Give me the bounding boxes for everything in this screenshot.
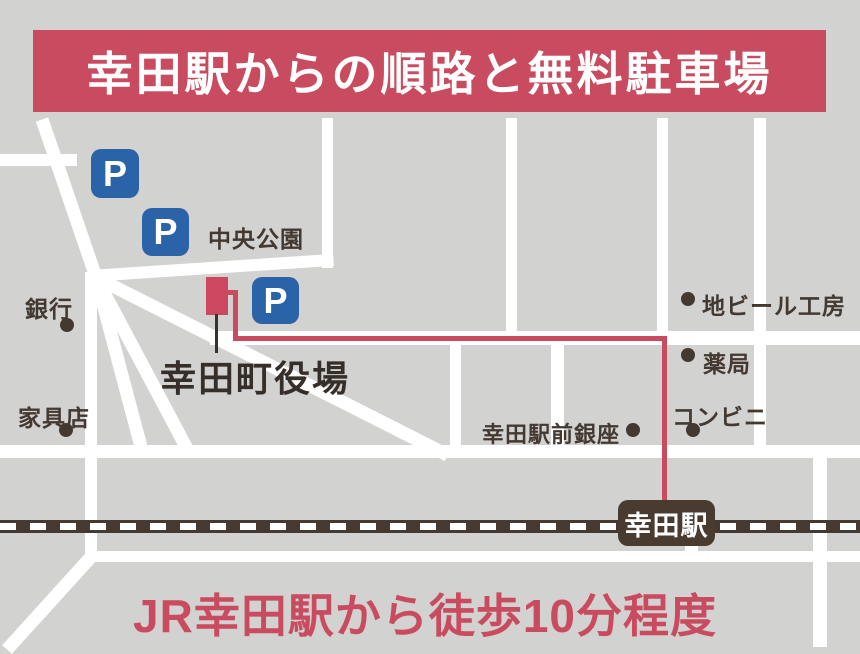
- title-banner: 幸田駅からの順路と無料駐車場: [33, 30, 826, 112]
- road-diagonal-upper-left: [36, 117, 102, 279]
- station-box: 幸田駅: [618, 500, 715, 546]
- road-vertical-2: [506, 118, 517, 338]
- route-segment-down-2: [662, 338, 667, 503]
- town-hall-callout-line: [215, 314, 218, 353]
- parking-letter: P: [153, 211, 177, 253]
- route-segment-horizontal: [233, 336, 667, 341]
- parking-letter: P: [103, 153, 127, 195]
- label-beer-brewery: 地ビール工房: [702, 287, 846, 321]
- page-title: 幸田駅からの順路と無料駐車場: [87, 38, 773, 104]
- town-hall-label: 幸田町役場: [160, 350, 350, 402]
- road-vertical-5: [450, 344, 461, 446]
- label-central-park: 中央公園: [208, 220, 304, 254]
- location-dot-furniture-store: [59, 423, 73, 437]
- footer-note: JR幸田駅から徒歩10分程度: [0, 580, 850, 646]
- road-below-railway: [88, 551, 860, 562]
- town-hall-marker: [206, 277, 228, 315]
- location-dot-ekimae-ginza: [626, 423, 640, 437]
- station-label: 幸田駅: [625, 504, 709, 543]
- parking-icon: P: [91, 149, 139, 198]
- parking-icon: P: [252, 277, 299, 324]
- label-ekimae-ginza: 幸田駅前銀座: [482, 417, 620, 449]
- road-vertical-1: [322, 118, 333, 268]
- location-dot-pharmacy: [681, 348, 695, 362]
- route-segment-down-1: [233, 290, 238, 341]
- label-furniture-store: 家具店: [18, 399, 90, 433]
- road-vertical-3: [657, 118, 668, 334]
- railway-line: [0, 520, 860, 533]
- parking-letter: P: [263, 280, 287, 322]
- location-dot-bank: [60, 318, 74, 332]
- location-dot-convenience-store: [686, 423, 700, 437]
- road-top-left: [0, 154, 77, 166]
- parking-icon: P: [142, 208, 189, 256]
- location-dot-beer-brewery: [681, 292, 695, 306]
- label-pharmacy: 薬局: [703, 345, 751, 379]
- map-canvas: 幸田町役場 P P P 中央公園 銀行 家具店 地ビール工房 薬局 コンビニ 幸…: [0, 0, 860, 647]
